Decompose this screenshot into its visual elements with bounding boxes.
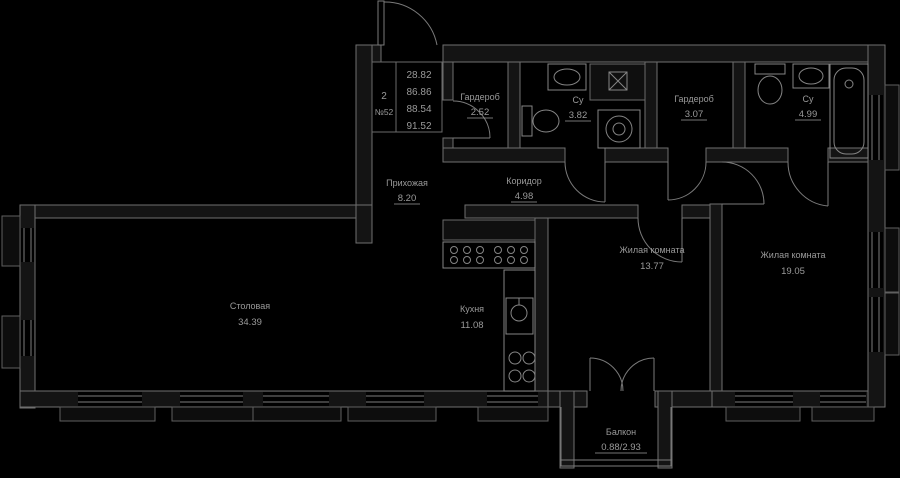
room-area-bedroom1: 13.77 (640, 261, 664, 272)
info-area-living: 28.82 (406, 70, 431, 81)
room-label-dining: Столовая (230, 301, 270, 311)
info-rooms-count: 2 (381, 91, 387, 102)
room-label-bedroom2: Жилая комната (760, 250, 825, 260)
room-label-bathroom1: Су (573, 95, 584, 105)
room-label-balcony: Балкон (606, 427, 636, 437)
room-area-hallway: 8.20 (398, 193, 417, 204)
sink (793, 64, 829, 88)
room-area-bathroom2: 4.99 (799, 109, 818, 120)
info-area-total-full: 91.52 (406, 121, 431, 132)
toilet (755, 64, 785, 104)
washing-machine (598, 110, 640, 148)
room-label-corridor: Коридор (506, 176, 542, 186)
info-box: 2 №52 28.82 86.86 88.54 91.52 (372, 62, 442, 132)
toilet (522, 106, 559, 136)
info-area-no-summer: 86.86 (406, 87, 431, 98)
room-label-bathroom2: Су (803, 94, 814, 104)
kitchen-cabinets (443, 220, 535, 268)
room-area-kitchen: 11.08 (460, 320, 483, 331)
kitchen-counter (504, 270, 535, 391)
kitchen-sink (506, 298, 533, 334)
entrance-door-leaf (378, 1, 384, 45)
room-area-dining: 34.39 (238, 317, 262, 328)
stove (509, 352, 535, 382)
floor-plan: 2 №52 28.82 86.86 88.54 91.52 Столовая 3… (0, 0, 900, 478)
room-label-hallway: Прихожая (386, 178, 428, 188)
room-area-wardrobe2: 3.07 (685, 109, 704, 120)
sink (548, 64, 586, 90)
room-label-bedroom1: Жилая комната (619, 245, 684, 255)
room-area-corridor: 4.98 (515, 191, 534, 202)
floor-plan-svg: 2 №52 28.82 86.86 88.54 91.52 Столовая 3… (0, 0, 900, 478)
info-apartment-number: №52 (375, 107, 394, 117)
vent-shaft (590, 64, 645, 100)
room-label-wardrobe2: Гардероб (674, 94, 714, 104)
room-label-wardrobe1: Гардероб (460, 92, 500, 102)
room-area-balcony: 0.88/2.93 (601, 442, 641, 453)
info-area-total: 88.54 (406, 104, 431, 115)
room-area-wardrobe1: 2.52 (471, 107, 490, 118)
room-area-bathroom1: 3.82 (569, 110, 588, 121)
room-area-bedroom2: 19.05 (781, 266, 805, 277)
bathtub (830, 64, 868, 158)
room-label-kitchen: Кухня (460, 304, 484, 314)
entrance-door-arc (384, 2, 437, 45)
